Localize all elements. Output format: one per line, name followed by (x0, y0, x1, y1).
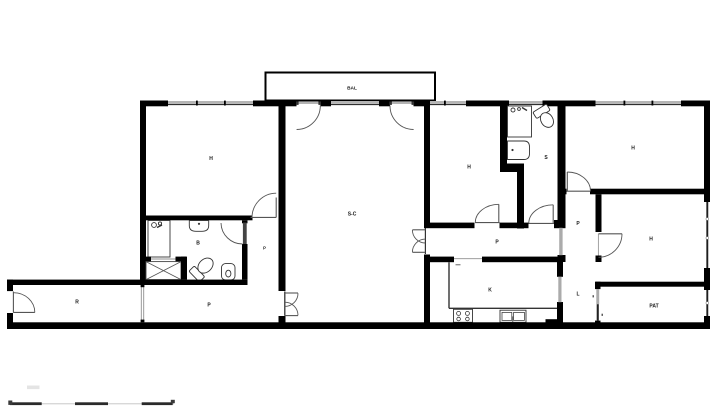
svg-text:L: L (576, 292, 579, 298)
svg-text:H: H (649, 237, 653, 243)
svg-text:PAT: PAT (649, 304, 658, 310)
svg-text:S-C: S-C (348, 212, 357, 218)
svg-text:R: R (75, 300, 79, 306)
svg-text:BAL: BAL (347, 86, 357, 92)
svg-text:K: K (488, 288, 492, 294)
svg-text:P: P (263, 246, 266, 251)
svg-text:B: B (196, 241, 200, 247)
svg-text:H: H (209, 156, 213, 162)
svg-text:H: H (631, 146, 635, 152)
svg-text:H: H (467, 165, 471, 171)
